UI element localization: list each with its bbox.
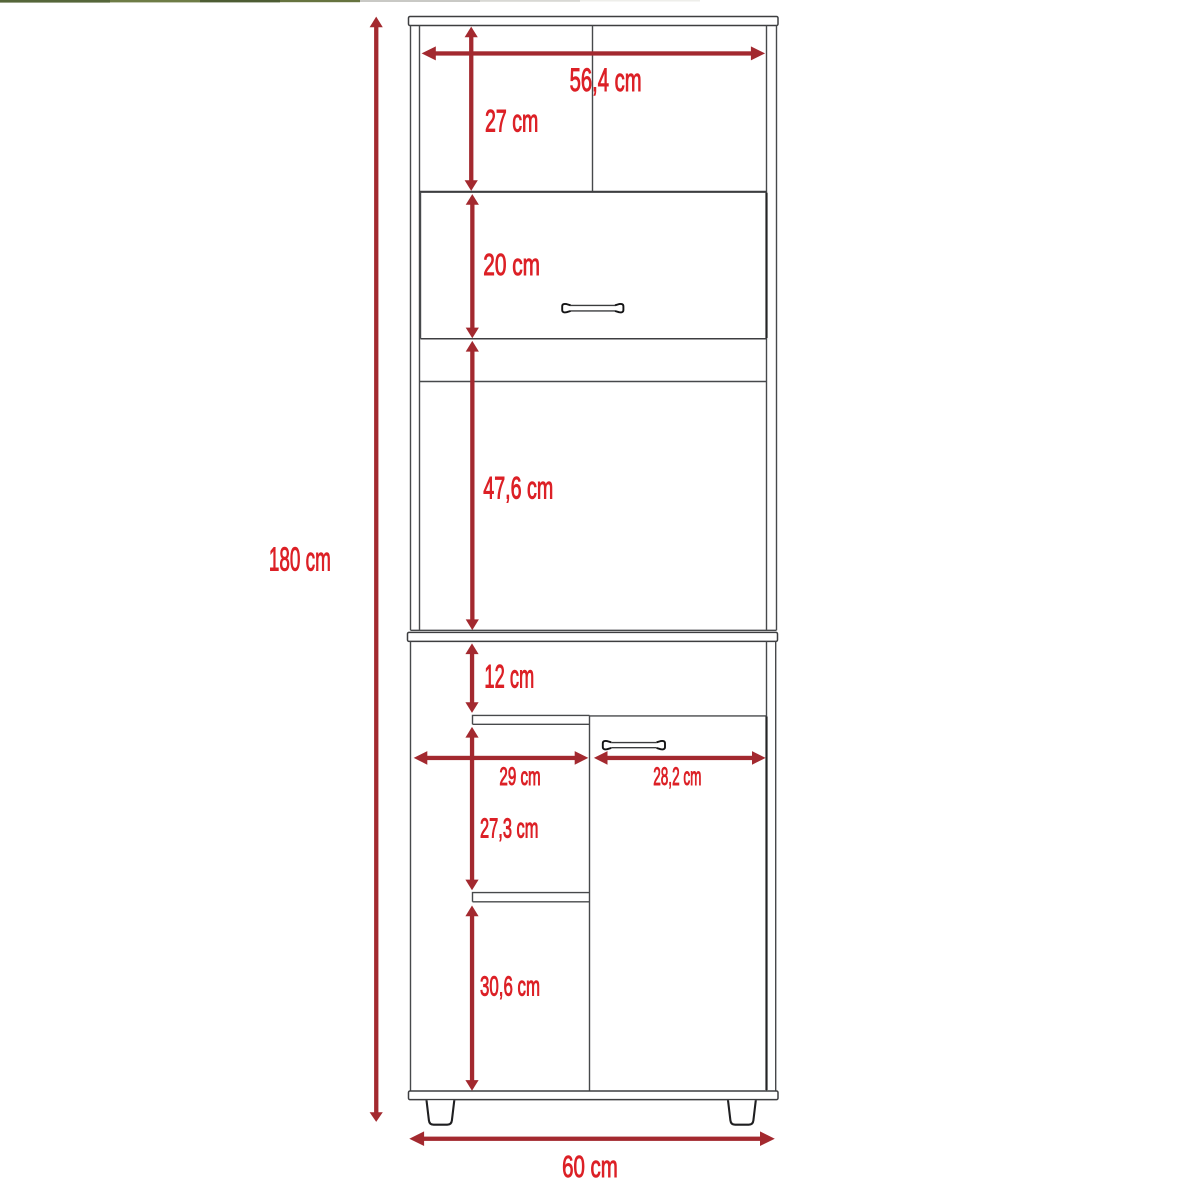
svg-text:20 cm: 20 cm <box>483 248 540 282</box>
svg-text:29 cm: 29 cm <box>499 763 540 791</box>
svg-text:28,2 cm: 28,2 cm <box>653 763 701 791</box>
svg-text:47,6 cm: 47,6 cm <box>483 469 553 505</box>
svg-text:30,6 cm: 30,6 cm <box>480 970 540 1001</box>
svg-text:56,4 cm: 56,4 cm <box>570 62 642 98</box>
svg-text:180 cm: 180 cm <box>269 541 331 578</box>
svg-text:27 cm: 27 cm <box>485 103 538 139</box>
svg-text:60 cm: 60 cm <box>562 1149 618 1184</box>
svg-text:12 cm: 12 cm <box>484 659 534 695</box>
svg-text:27,3 cm: 27,3 cm <box>480 813 538 844</box>
